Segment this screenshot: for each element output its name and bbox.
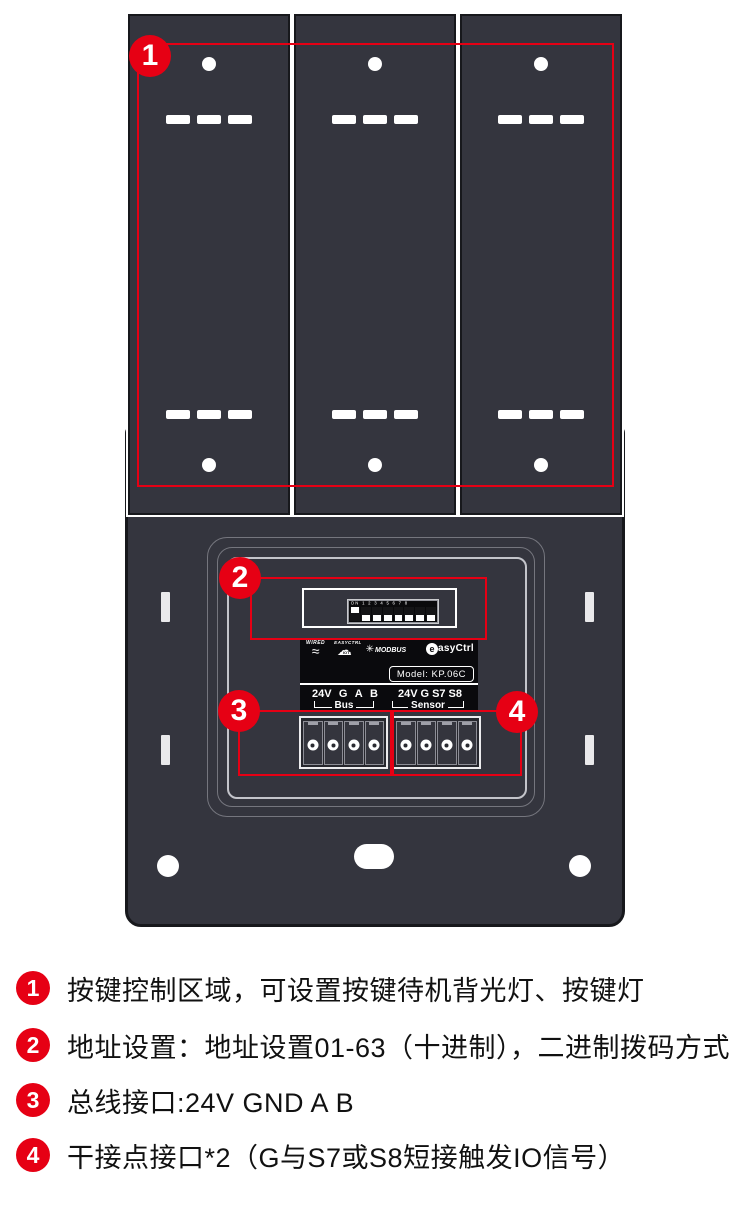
sensor-bracket: Sensor — [392, 701, 464, 710]
legend-badge-1: 1 — [16, 971, 50, 1005]
modbus-icon: ✳ — [366, 645, 374, 655]
clip-slot — [585, 735, 594, 765]
legend-text-3: 总线接口:24V GND A B — [67, 1081, 354, 1120]
wave-icon: ≈ — [312, 646, 320, 656]
callout-circle-3: 3 — [218, 690, 260, 732]
callout-box-2 — [250, 577, 487, 640]
clip-slot — [161, 592, 170, 622]
bus-label: Bus — [332, 701, 357, 710]
easyctrl-brand-logo: e asyCtrl — [426, 643, 474, 655]
product-label: WIRED ≈ EASYCTRL ☁ IOT ✳ MODBUS e asyCtr… — [300, 638, 478, 712]
keypad-rear-diagram: ON 1 2 3 4 5 6 7 8 WIRED ≈ EASYCTRL — [0, 0, 750, 1221]
legend-row-1: 1 按键控制区域，可设置按键待机背光灯、按键灯 — [16, 969, 740, 1007]
mounting-slot-center — [354, 844, 394, 869]
legend-text-4: 干接点接口*2（G与S7或S8短接触发IO信号） — [67, 1136, 625, 1175]
brand-disc-icon: e — [426, 643, 438, 655]
callout-box-3 — [238, 710, 392, 776]
mounting-hole-left — [157, 855, 179, 877]
bus-pin-labels: 24VGAB — [312, 688, 378, 700]
legend-badge-4: 4 — [16, 1138, 50, 1172]
callout-circle-1: 1 — [129, 35, 171, 77]
legend-text-2: 地址设置：地址设置01-63（十进制），二进制拨码方式 — [67, 1026, 730, 1065]
legend-badge-2: 2 — [16, 1028, 50, 1062]
callout-circle-2: 2 — [219, 557, 261, 599]
sensor-pin-labels: 24VGS7S8 — [398, 688, 462, 700]
legend-text-1: 按键控制区域，可设置按键待机背光灯、按键灯 — [67, 969, 645, 1008]
legend-badge-3: 3 — [16, 1083, 50, 1117]
callout-box-1 — [137, 43, 614, 487]
wired-logo: WIRED ≈ — [306, 641, 325, 656]
sensor-label: Sensor — [408, 701, 448, 710]
legend-row-2: 2 地址设置：地址设置01-63（十进制），二进制拨码方式 — [16, 1026, 740, 1064]
model-number: Model: KP.06C — [389, 666, 474, 682]
callout-circle-4: 4 — [496, 691, 538, 733]
clip-slot — [585, 592, 594, 622]
clip-slot — [161, 735, 170, 765]
easyctrl-iot-logo: EASYCTRL ☁ IOT — [334, 641, 361, 659]
legend-row-3: 3 总线接口:24V GND A B — [16, 1081, 740, 1119]
cloud-icon: ☁ IOT — [337, 646, 359, 659]
label-divider — [300, 683, 478, 685]
bus-bracket: Bus — [314, 701, 374, 710]
legend-row-4: 4 干接点接口*2（G与S7或S8短接触发IO信号） — [16, 1136, 740, 1174]
modbus-logo: ✳ MODBUS — [366, 645, 407, 655]
mounting-hole-right — [569, 855, 591, 877]
